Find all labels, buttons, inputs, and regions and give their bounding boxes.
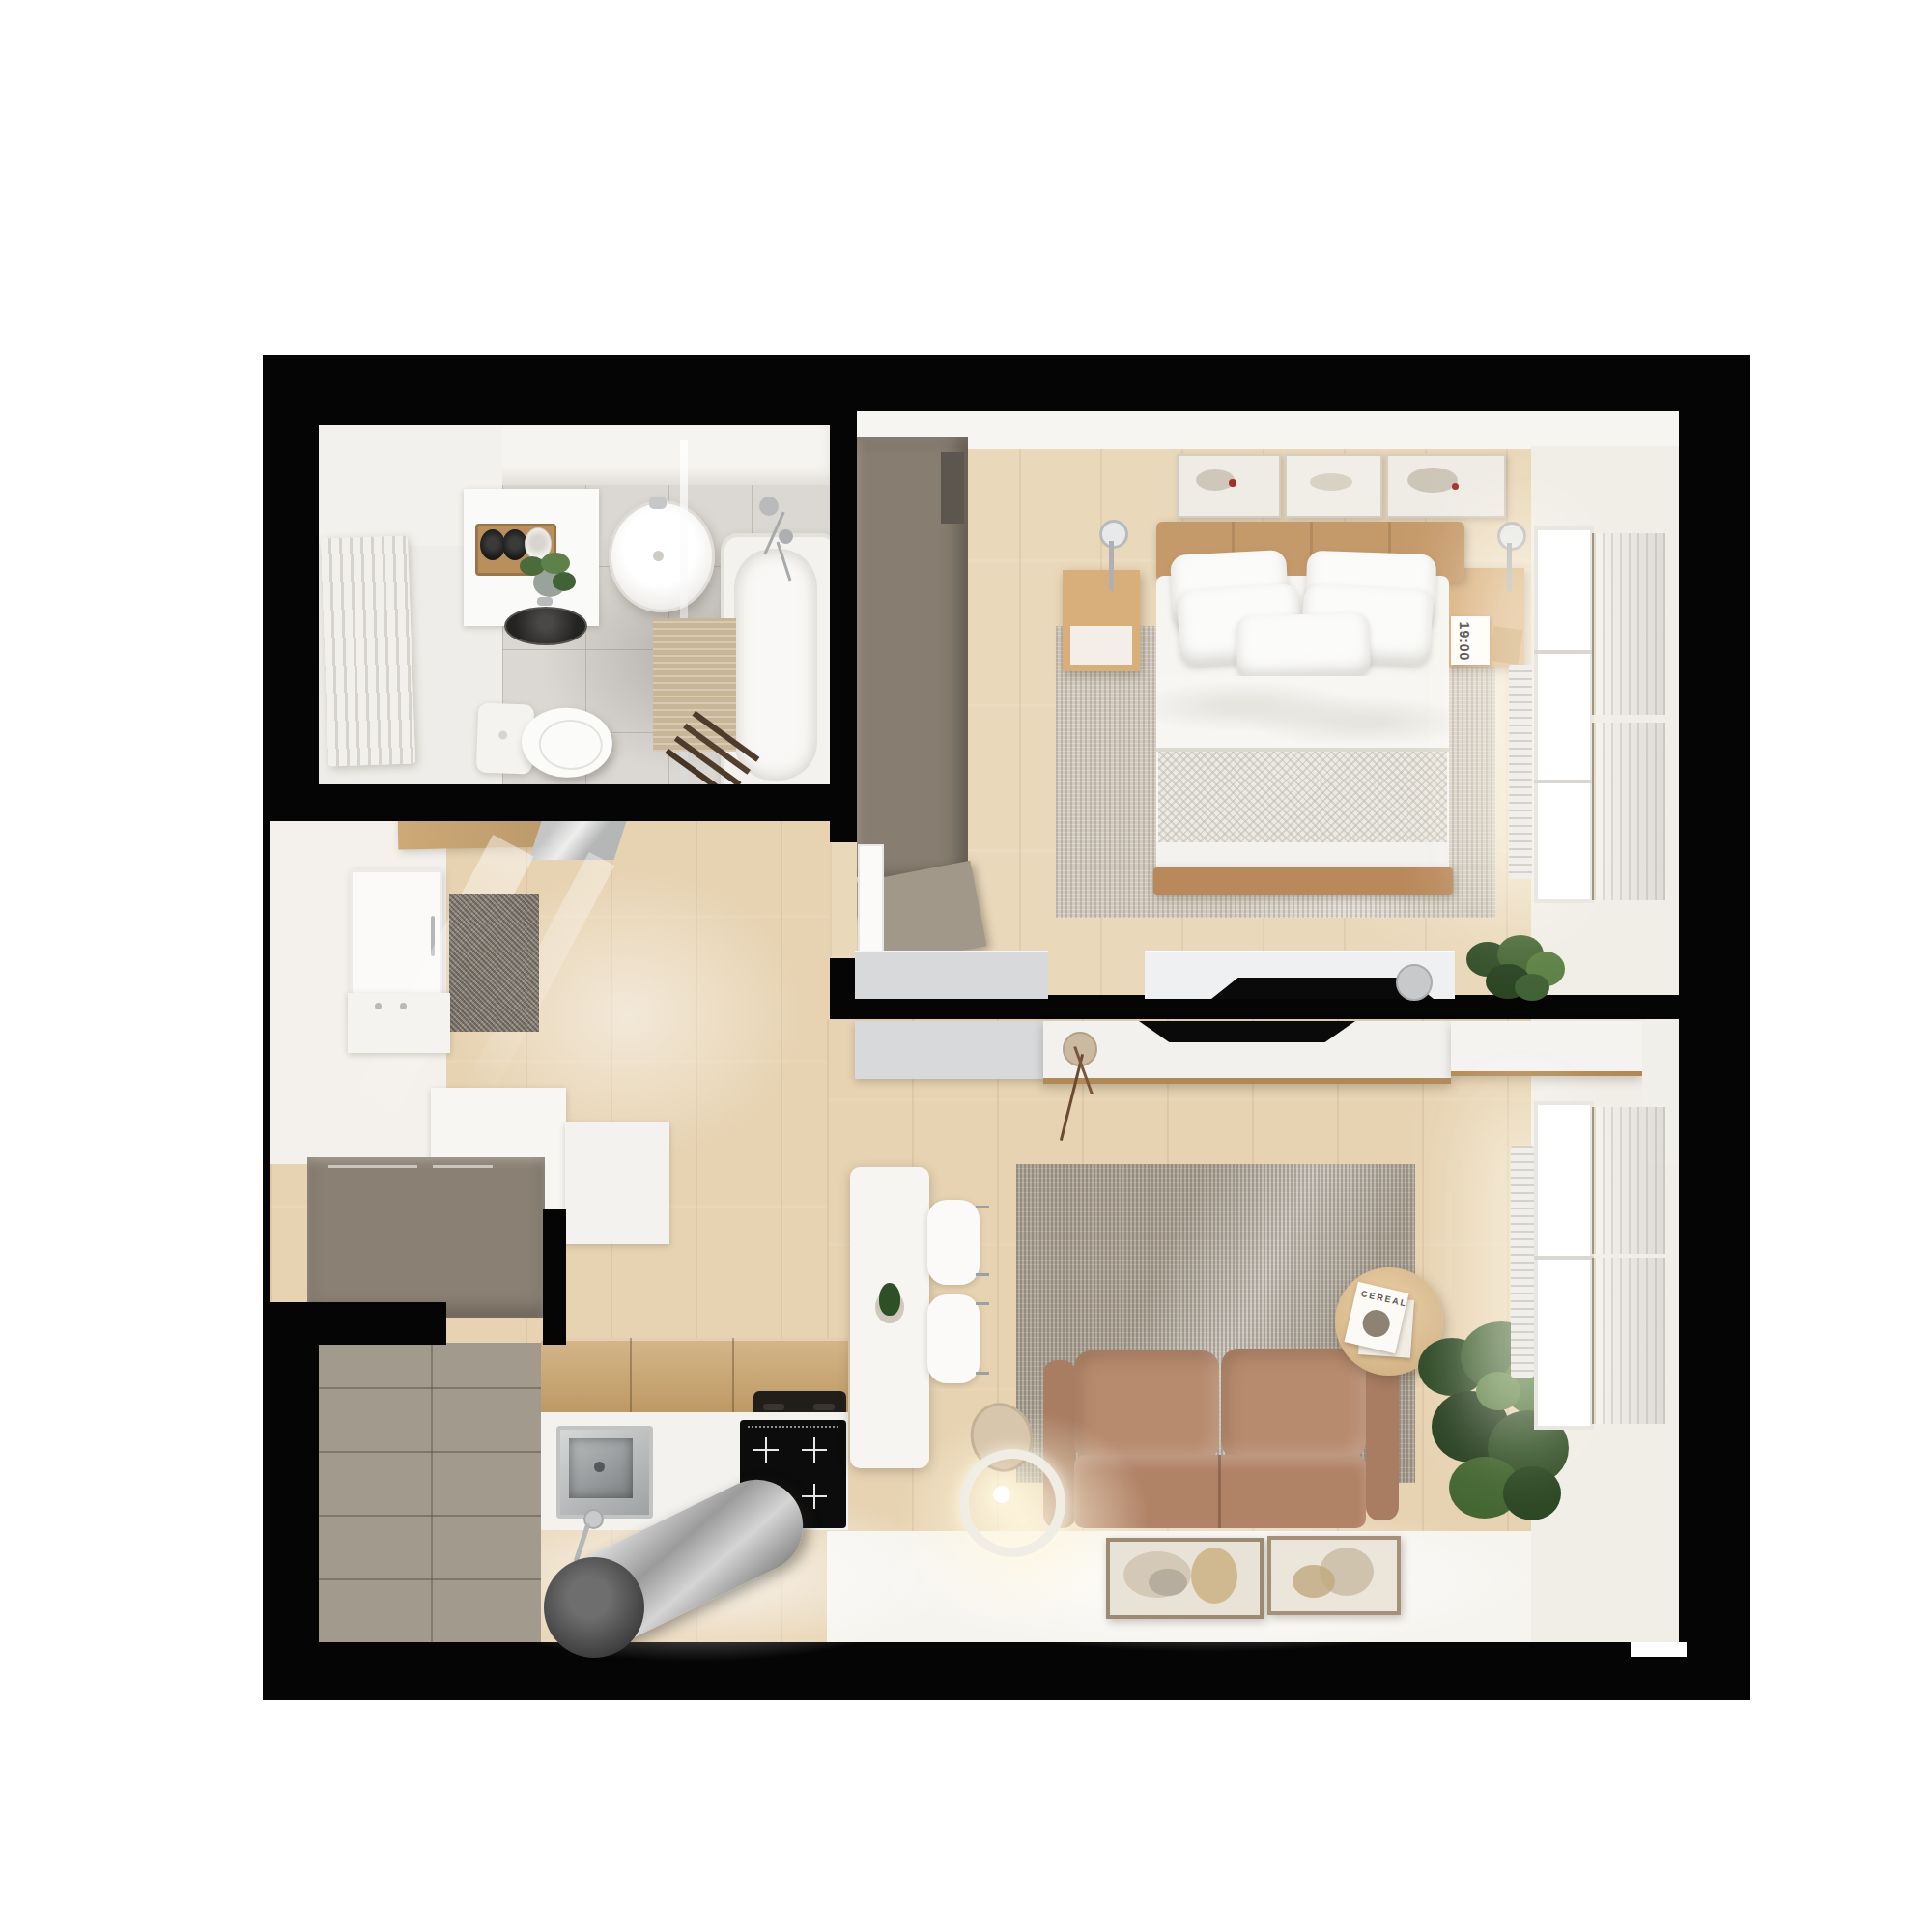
wall-stub-kitchen-horizontal <box>263 1302 446 1345</box>
bedroom-top-wall-face <box>857 411 1679 449</box>
kitchen-tall-cabinets <box>319 1343 541 1642</box>
tv-console-wood-edge <box>1043 1078 1451 1084</box>
toilet <box>476 697 614 783</box>
sofa-seat-seam <box>1218 1455 1221 1528</box>
bedroom-curtain-upper <box>1592 533 1665 715</box>
pendant-lamp-left <box>1099 520 1128 549</box>
entry-closet <box>307 1157 545 1318</box>
sofa-back-cushion-2 <box>1221 1349 1366 1459</box>
bathroom-radiator <box>321 536 415 767</box>
magazine-title: CEREAL <box>1360 1289 1408 1309</box>
throw-blanket <box>1158 752 1447 842</box>
chair-1-frame <box>976 1206 989 1208</box>
duvet <box>1156 676 1449 752</box>
chair-2 <box>927 1294 980 1383</box>
shoe-cabinet <box>348 993 450 1053</box>
wardrobe-mirror-strip <box>941 452 964 524</box>
art-frame-2 <box>1285 454 1382 518</box>
bedroom-door-opening <box>830 842 857 958</box>
art-frame-1 <box>1177 454 1281 518</box>
wall-bath-hall <box>263 784 857 821</box>
green-vase-pear <box>879 1283 900 1316</box>
art-frame-3 <box>1386 454 1506 518</box>
nightstand-left <box>1063 570 1140 671</box>
floor-lamp-bulb <box>993 1486 1010 1503</box>
bedroom-window <box>1534 526 1594 903</box>
kitchen-cabinet-seam <box>431 1343 433 1642</box>
living-radiator <box>1511 1146 1534 1378</box>
dresser-round-object <box>1396 964 1433 1001</box>
entry-tall-cabinet <box>565 1122 669 1244</box>
chair-2-frame-2 <box>976 1372 989 1375</box>
living-sideboard-gray <box>855 1021 1048 1079</box>
sink-drain <box>594 1462 605 1472</box>
chair-2-frame <box>976 1302 989 1305</box>
entry-closet-handle-1 <box>328 1165 417 1168</box>
alarm-clock-time: 19:00 <box>1457 622 1472 662</box>
mattress-foot-strip <box>1156 842 1449 869</box>
chair-1 <box>927 1200 980 1285</box>
entry-closet-handle-2 <box>433 1165 493 1168</box>
washbasin-drain <box>653 551 664 561</box>
bathroom-plant-leaf-3 <box>553 572 576 591</box>
bedroom-sideboard-gray <box>855 951 1048 999</box>
pendant-lamp-right-stem <box>1507 543 1512 591</box>
washbasin-faucet <box>649 497 667 509</box>
alarm-clock-card: 19:00 <box>1451 616 1490 665</box>
living-curtain-upper <box>1592 1107 1665 1254</box>
bedroom-door-leaf <box>858 844 884 956</box>
wall-kitchen-left-thick <box>263 1343 319 1700</box>
bed-foot-frame <box>1153 867 1453 895</box>
wood-counter-seam-1 <box>630 1338 632 1413</box>
shower-mixer-head <box>759 497 779 516</box>
floor-lamp-ring <box>959 1449 1065 1557</box>
pillow-5 <box>1236 612 1371 681</box>
doormat <box>449 894 539 1032</box>
vessel-sink-faucet <box>537 597 553 606</box>
shoe-cabinet-knob-2 <box>400 1003 407 1009</box>
vessel-sink <box>504 607 587 645</box>
outer-wall-notch <box>1631 1642 1687 1657</box>
floor-art-frame-1 <box>1106 1538 1264 1619</box>
bedroom-radiator <box>1509 665 1532 879</box>
magazine-cover-photo <box>1360 1307 1393 1340</box>
bedroom-curtain-lower <box>1592 723 1665 900</box>
shower-mixer-valve <box>779 529 793 544</box>
living-window <box>1534 1101 1594 1430</box>
corner-cabinet-right <box>1451 1021 1642 1076</box>
bathroom-plant-leaf-2 <box>541 553 570 574</box>
wall-stub-closet-vertical <box>543 1209 566 1345</box>
floor-plan: 19:00 <box>0 0 1932 1932</box>
pendant-lamp-left-stem <box>1109 541 1114 591</box>
nightstand-right-box <box>1490 626 1523 665</box>
living-curtain-lower <box>1592 1258 1665 1424</box>
wood-counter-seam-2 <box>732 1338 734 1413</box>
sofa-armrest-right <box>1366 1354 1399 1520</box>
pendant-lamp-right <box>1497 522 1526 551</box>
chair-1-frame-2 <box>976 1273 989 1276</box>
shoe-cabinet-knob-1 <box>375 1003 382 1009</box>
wall-hall-bedroom-upper <box>830 355 857 842</box>
extractor-hood-cap <box>544 1557 644 1658</box>
living-tv <box>1139 1021 1355 1042</box>
floor-art-frame-2 <box>1267 1536 1401 1615</box>
